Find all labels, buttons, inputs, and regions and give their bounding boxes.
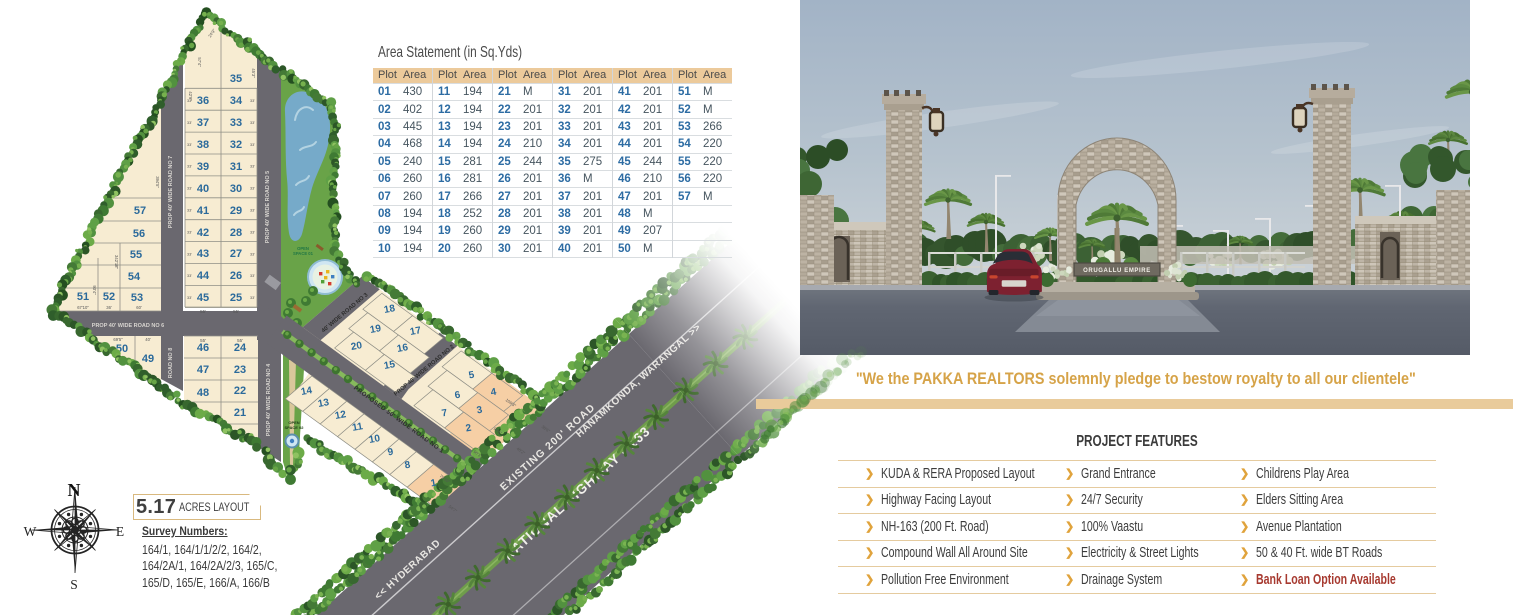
svg-text:39: 39: [197, 161, 209, 173]
svg-text:36': 36': [106, 305, 112, 310]
svg-text:27: 27: [230, 248, 242, 260]
svg-text:33': 33': [250, 296, 255, 300]
svg-text:55': 55': [233, 309, 239, 314]
svg-text:W: W: [24, 524, 37, 539]
svg-text:22: 22: [234, 385, 246, 397]
svg-text:33': 33': [250, 230, 255, 234]
svg-text:67'10": 67'10": [77, 305, 89, 310]
svg-text:S: S: [70, 577, 78, 592]
svg-text:E: E: [116, 524, 124, 539]
svg-text:43: 43: [197, 248, 209, 260]
svg-text:45: 45: [197, 292, 209, 304]
svg-text:55: 55: [130, 249, 142, 261]
svg-text:40: 40: [197, 183, 209, 195]
svg-text:33': 33': [250, 143, 255, 147]
svg-text:28: 28: [230, 227, 242, 239]
svg-text:37: 37: [197, 117, 209, 129]
svg-text:93'4": 93'4": [92, 285, 97, 295]
svg-text:342'18": 342'18": [114, 255, 119, 269]
svg-text:55': 55': [200, 309, 206, 314]
svg-text:ORUGALLU EMPIRE: ORUGALLU EMPIRE: [1083, 268, 1151, 274]
svg-text:55': 55': [200, 338, 206, 343]
svg-text:33': 33': [187, 230, 192, 234]
svg-text:ROAD NO 8: ROAD NO 8: [168, 348, 174, 379]
svg-text:33': 33': [250, 99, 255, 103]
svg-text:49: 49: [142, 353, 154, 365]
svg-text:36: 36: [197, 95, 209, 107]
svg-text:23: 23: [234, 364, 246, 376]
svg-text:48: 48: [197, 387, 209, 399]
svg-text:38: 38: [197, 139, 209, 151]
svg-text:33': 33': [187, 143, 192, 147]
svg-text:33': 33': [250, 121, 255, 125]
svg-text:33': 33': [187, 296, 192, 300]
svg-text:46: 46: [197, 342, 209, 354]
svg-text:N: N: [68, 480, 81, 500]
svg-text:35: 35: [230, 73, 242, 85]
svg-text:34: 34: [230, 95, 243, 107]
svg-text:26: 26: [230, 270, 242, 282]
svg-text:33': 33': [187, 165, 192, 169]
svg-text:45'3": 45'3": [251, 68, 256, 78]
svg-text:32: 32: [230, 139, 242, 151]
svg-text:33': 33': [250, 165, 255, 169]
svg-text:42: 42: [197, 227, 209, 239]
svg-text:33': 33': [187, 209, 192, 213]
svg-text:44: 44: [197, 270, 210, 282]
svg-text:394'5": 394'5": [155, 176, 160, 188]
svg-text:52: 52: [103, 291, 115, 303]
svg-text:PROP 40' WIDE ROAD NO 7: PROP 40' WIDE ROAD NO 7: [168, 156, 174, 228]
svg-text:PROP 40' WIDE ROAD NO 5: PROP 40' WIDE ROAD NO 5: [265, 171, 271, 243]
svg-text:21: 21: [234, 407, 246, 419]
svg-text:33': 33': [187, 121, 192, 125]
svg-text:SPACE 02: SPACE 02: [284, 425, 304, 430]
svg-text:47: 47: [197, 364, 209, 376]
svg-text:54: 54: [128, 271, 141, 283]
svg-text:40': 40': [145, 337, 151, 342]
svg-text:69'5": 69'5": [113, 337, 123, 342]
svg-text:31: 31: [230, 161, 242, 173]
svg-text:41: 41: [197, 205, 209, 217]
svg-text:42'9": 42'9": [188, 91, 193, 101]
svg-text:33': 33': [250, 209, 255, 213]
svg-text:33': 33': [187, 274, 192, 278]
svg-text:56: 56: [133, 228, 145, 240]
svg-text:30: 30: [230, 183, 242, 195]
svg-text:53: 53: [131, 292, 143, 304]
svg-text:55': 55': [237, 338, 243, 343]
svg-text:33': 33': [250, 252, 255, 256]
svg-text:57'4": 57'4": [197, 57, 202, 67]
svg-text:33': 33': [187, 252, 192, 256]
svg-text:33': 33': [187, 187, 192, 191]
svg-text:24: 24: [234, 342, 247, 354]
svg-text:57: 57: [134, 205, 146, 217]
svg-text:33: 33: [230, 117, 242, 129]
svg-text:51: 51: [77, 291, 89, 303]
svg-text:25: 25: [230, 292, 242, 304]
svg-text:SPACE 01: SPACE 01: [293, 251, 314, 256]
svg-text:33': 33': [250, 187, 255, 191]
svg-text:33': 33': [250, 274, 255, 278]
svg-text:29: 29: [230, 205, 242, 217]
svg-text:PROP 40' WIDE ROAD NO 4: PROP 40' WIDE ROAD NO 4: [266, 363, 272, 436]
svg-text:PROP 40' WIDE ROAD NO 6: PROP 40' WIDE ROAD NO 6: [92, 323, 164, 329]
svg-text:60': 60': [136, 305, 142, 310]
